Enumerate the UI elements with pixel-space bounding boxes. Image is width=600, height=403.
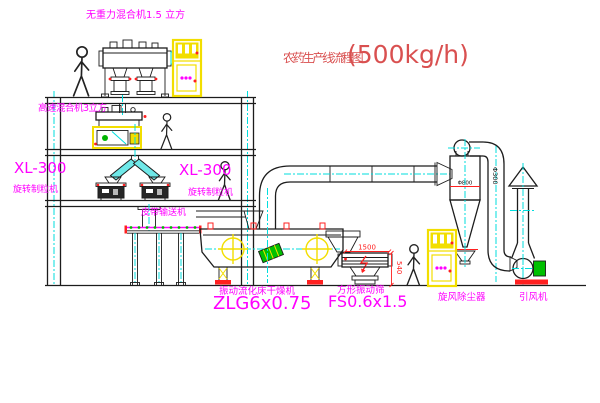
gravity-free-mixer (99, 40, 181, 116)
granulator-right (140, 183, 170, 201)
label-belt-conveyor: 皮带输送机 (141, 209, 186, 218)
label-gravity-mixer: 无重力混合机1.5 立方 (86, 11, 185, 21)
label-granulator-right-model: XL-300 (179, 163, 231, 178)
label-screener-model: FS0.6x1.5 (328, 294, 407, 310)
granulator-left (96, 183, 126, 201)
label-high-speed-mixer: 高速混合机3立方 (38, 104, 107, 114)
person-figure-roof (74, 47, 89, 96)
label-fan: 引风机 (519, 293, 548, 303)
control-cabinet-top (173, 40, 201, 96)
dim-screener-height: 540 (395, 261, 403, 274)
label-granulator-left-model: XL-300 (14, 161, 66, 176)
cad-flow-diagram: Φ800 Φ300 (0, 0, 600, 403)
fluid-bed-dryer (196, 211, 343, 285)
label-granulator-right-name: 旋转制粒机 (188, 189, 233, 198)
vibration-motor (259, 243, 284, 262)
person-figure-mixer-floor (161, 114, 172, 149)
person-figure-ground (407, 245, 419, 285)
spring-mounts (208, 223, 325, 229)
conveyor-legs (131, 233, 186, 286)
dryer-legs (215, 267, 323, 285)
label-dryer-model: ZLG6x0.75 (213, 295, 312, 313)
dim-screener-length: 1500 (358, 244, 376, 252)
label-cyclone: 旋风除尘器 (438, 293, 486, 303)
label-granulator-left-name: 旋转制粒机 (13, 186, 58, 195)
pipe-diameter-note: Φ300 (491, 167, 499, 185)
square-screener: 1500 540 (326, 231, 403, 287)
control-cabinet-ground (428, 230, 456, 286)
belt-conveyor (125, 226, 202, 286)
diagram-title-capacity: (500kg/h) (347, 42, 469, 67)
